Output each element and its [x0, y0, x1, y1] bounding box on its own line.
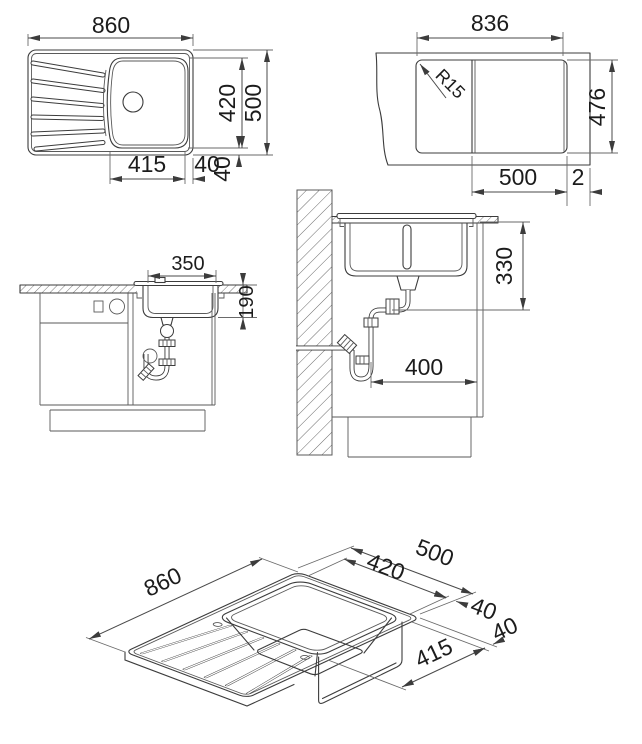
- plan-bowl-inner: [111, 61, 185, 145]
- plan-weir-curve: [103, 70, 106, 136]
- side-wall-section: [297, 190, 332, 455]
- dim-cutout-bowl-section: 500: [499, 164, 537, 190]
- front-bowl-outer: [143, 286, 218, 318]
- front-clamps: [137, 293, 224, 298]
- dim-iso-overall-depth: 500: [412, 534, 457, 572]
- dim-front-bowl-depth: 190: [236, 285, 258, 318]
- front-bowl-inner: [148, 286, 213, 314]
- dim-cutout-depth: 476: [584, 88, 610, 126]
- dim-side-outlet-height: 330: [491, 247, 517, 285]
- dim-front-bowl-width: 350: [171, 253, 204, 275]
- front-appliance-button: [94, 301, 103, 312]
- sink-drawing-canvas: 860 420 500 415 40 40 836 R15 476: [0, 0, 642, 744]
- plan-drainboard-grooves: [33, 63, 103, 149]
- front-siphon-trap: [138, 318, 175, 381]
- front-plinth: [50, 410, 205, 431]
- dim-plan-bowl-depth: 420: [214, 84, 240, 122]
- side-view: 330 400: [290, 190, 530, 457]
- cutout-worktop-outline: [376, 53, 590, 165]
- front-appliance-knob: [110, 299, 125, 314]
- dim-plan-bowl-bottom-offset: 40: [209, 156, 235, 182]
- iso-sink-underside: [125, 622, 402, 706]
- dim-side-outlet-distance: 400: [405, 354, 443, 380]
- iso-drainboard-grooves: [142, 620, 321, 694]
- dim-cutout-edge-gap: 2: [572, 164, 585, 190]
- front-sink-rim: [134, 282, 223, 286]
- side-overflow-pipe: [403, 225, 411, 269]
- dim-plan-overall-depth: 500: [240, 84, 266, 122]
- plan-view: 860 420 500 415 40 40: [28, 12, 273, 184]
- iso-bowl-depth: [227, 618, 392, 676]
- dim-iso-bowl-width: 415: [411, 633, 457, 673]
- side-strainer: [397, 276, 419, 290]
- dim-cutout-corner-radius: R15: [431, 65, 468, 102]
- dim-cutout-width: 836: [471, 10, 509, 36]
- front-countertop-hatch-left: [20, 286, 137, 293]
- dim-iso-overall-width: 860: [140, 562, 186, 602]
- cutout-view: 836 R15 476 500 2: [376, 10, 618, 206]
- side-sink-rim: [337, 214, 476, 219]
- technical-drawing-page: 860 420 500 415 40 40 836 R15 476: [0, 0, 642, 744]
- dim-plan-bowl-width: 415: [128, 151, 166, 177]
- plan-bowl-outline: [107, 58, 188, 148]
- dim-plan-overall-width: 860: [92, 12, 130, 38]
- front-view: 350 190: [20, 253, 258, 431]
- iso-tap-hole-rear: [211, 622, 223, 627]
- front-tap-hole: [155, 278, 165, 283]
- iso-view: 860 500 420 40 415 40: [86, 534, 522, 706]
- plan-drain-hole-icon: [123, 92, 143, 112]
- dim-iso-bowl-depth: 420: [363, 548, 408, 586]
